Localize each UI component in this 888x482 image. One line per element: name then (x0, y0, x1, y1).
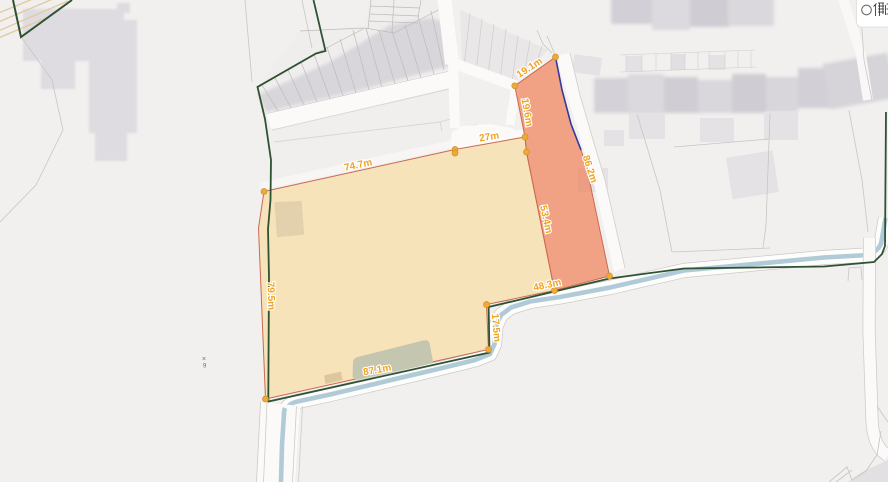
svg-text:79.5m: 79.5m (265, 282, 277, 311)
svg-text:×: × (202, 356, 206, 363)
